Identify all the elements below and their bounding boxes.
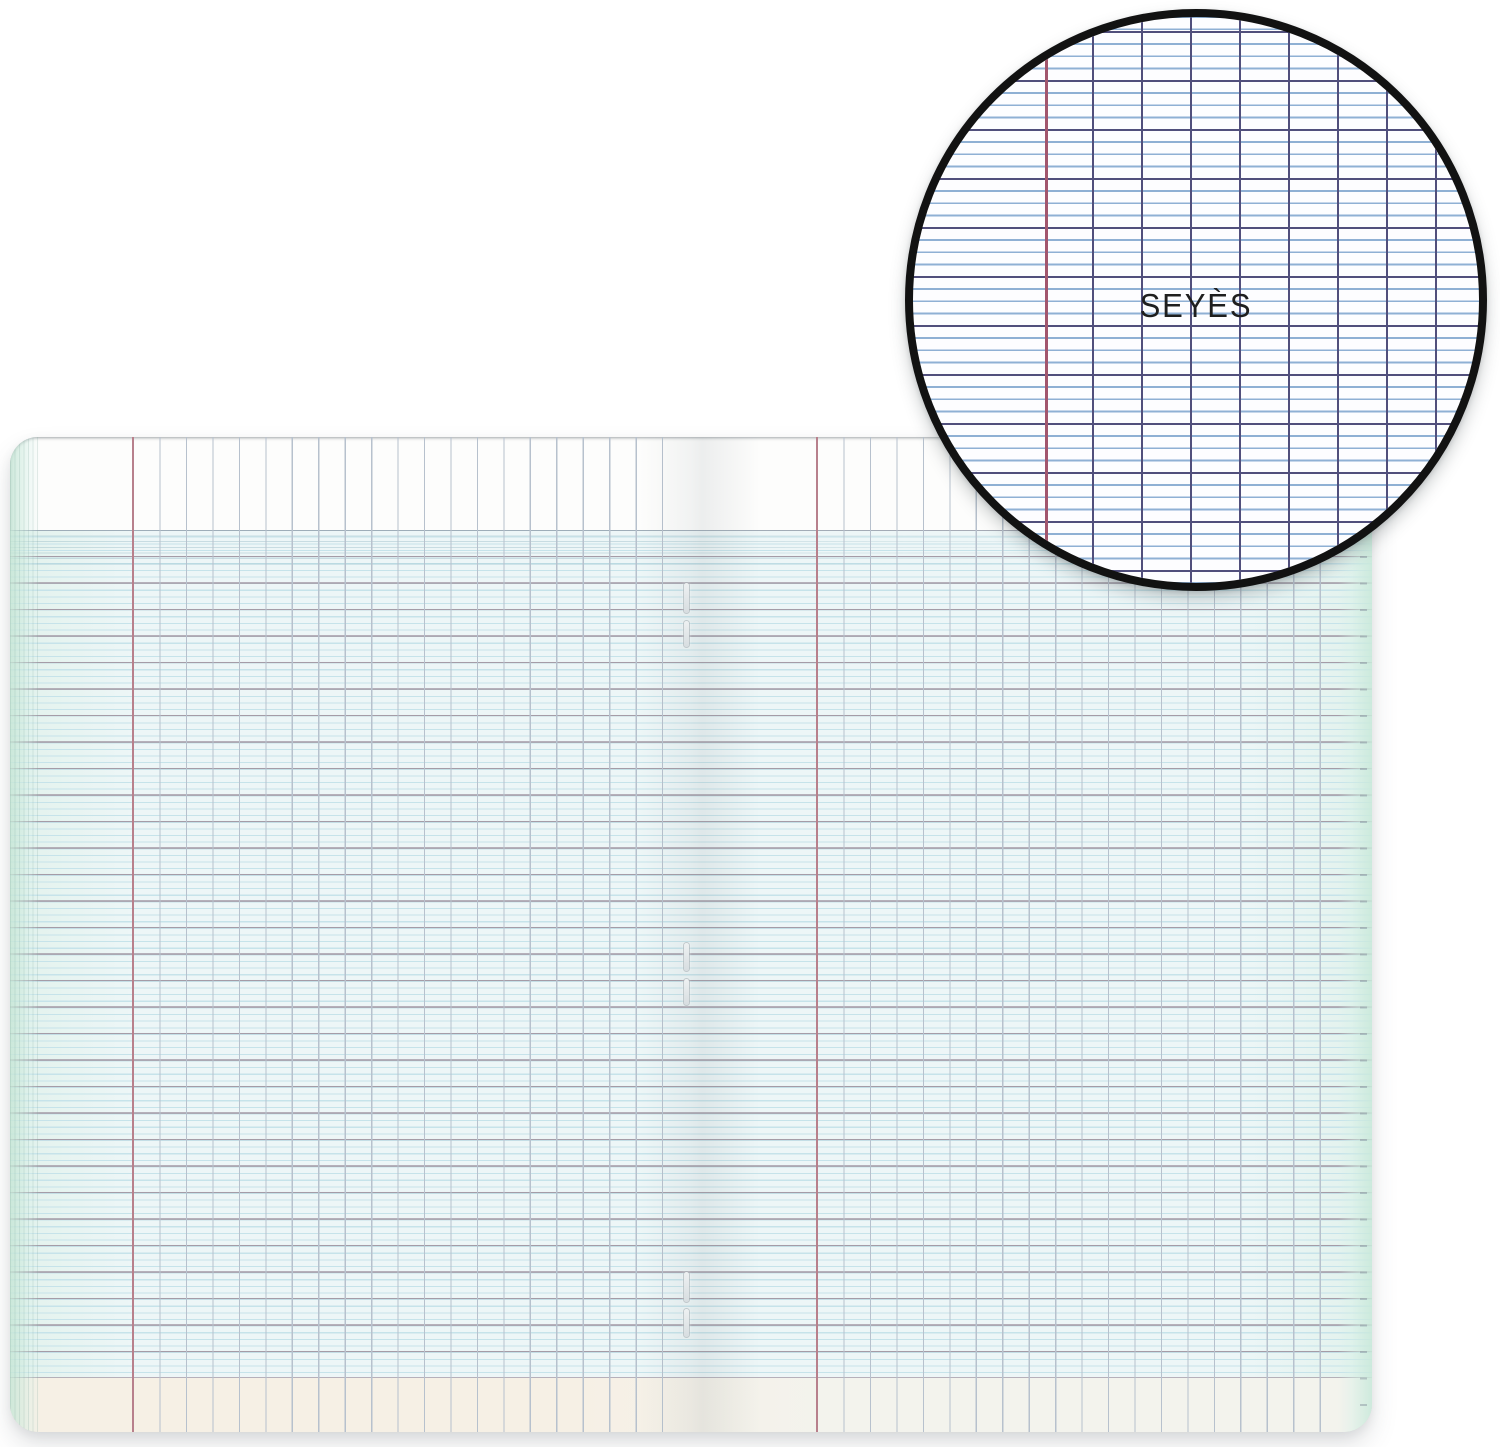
stacked-sheet-edges-right — [1338, 437, 1372, 1432]
stacked-sheet-edges-left — [10, 437, 40, 1432]
seyes-label: SEYÈS — [930, 286, 1462, 326]
staple — [684, 621, 689, 647]
staple — [684, 1272, 689, 1302]
staple — [684, 979, 689, 1005]
right-page-vertical-rules — [817, 437, 1341, 1432]
staple — [684, 1309, 689, 1337]
staple — [684, 943, 689, 971]
spine-fold — [640, 437, 760, 1432]
left-page-vertical-rules — [133, 437, 664, 1432]
right-page-margin-line — [816, 437, 818, 1432]
product-photo: SEYÈS — [0, 0, 1500, 1447]
left-page-margin-line — [132, 437, 134, 1432]
zoom-inset-circle: SEYÈS — [905, 9, 1487, 591]
staple — [684, 583, 689, 613]
